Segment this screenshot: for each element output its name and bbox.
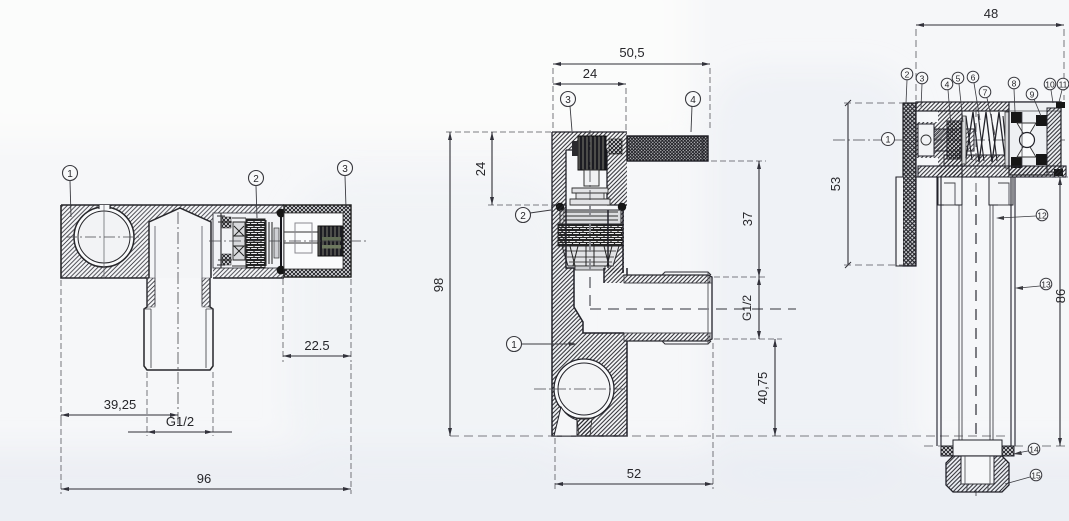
svg-text:G1/2: G1/2 <box>740 295 754 321</box>
svg-text:14: 14 <box>1029 445 1039 455</box>
svg-text:11: 11 <box>1059 80 1068 90</box>
svg-text:96: 96 <box>197 471 211 486</box>
svg-text:3: 3 <box>565 95 571 106</box>
svg-text:G1/2: G1/2 <box>166 414 194 429</box>
svg-text:24: 24 <box>473 162 488 176</box>
svg-text:4: 4 <box>945 80 950 90</box>
svg-text:12: 12 <box>1037 211 1047 221</box>
svg-text:22.5: 22.5 <box>304 338 329 353</box>
svg-text:4: 4 <box>690 95 696 106</box>
svg-text:52: 52 <box>627 466 641 481</box>
svg-text:86: 86 <box>1053 289 1068 303</box>
svg-text:40,75: 40,75 <box>755 372 770 405</box>
svg-text:7: 7 <box>983 88 988 98</box>
svg-text:1: 1 <box>67 169 73 180</box>
svg-text:39,25: 39,25 <box>104 397 137 412</box>
svg-text:13: 13 <box>1041 280 1051 290</box>
svg-text:98: 98 <box>431 278 446 292</box>
svg-text:3: 3 <box>920 74 925 84</box>
svg-text:53: 53 <box>828 177 843 191</box>
svg-text:15: 15 <box>1031 471 1041 481</box>
svg-text:9: 9 <box>1030 90 1035 100</box>
svg-text:2: 2 <box>520 211 526 222</box>
svg-text:2: 2 <box>905 70 910 80</box>
svg-text:1: 1 <box>511 340 517 351</box>
svg-text:6: 6 <box>971 73 976 83</box>
svg-text:50,5: 50,5 <box>619 45 644 60</box>
svg-text:5: 5 <box>956 74 961 84</box>
svg-text:37: 37 <box>740 212 755 226</box>
svg-text:1: 1 <box>885 135 890 145</box>
svg-text:3: 3 <box>342 164 348 175</box>
svg-text:10: 10 <box>1045 80 1055 90</box>
svg-text:8: 8 <box>1012 79 1017 89</box>
svg-text:24: 24 <box>583 66 597 81</box>
svg-text:48: 48 <box>984 6 998 21</box>
svg-text:2: 2 <box>253 174 259 185</box>
